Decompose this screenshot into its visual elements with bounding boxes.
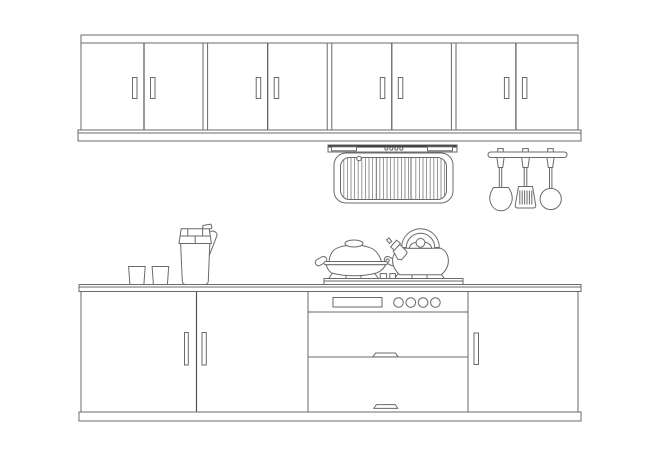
countertop bbox=[79, 285, 581, 292]
base-cabinet-run bbox=[79, 292, 581, 422]
upper-door-handle bbox=[380, 78, 385, 99]
oven-knob bbox=[431, 298, 441, 308]
hood-indicator-light bbox=[357, 156, 362, 161]
hood-control-dot bbox=[385, 147, 388, 150]
spatula-hanger bbox=[497, 158, 504, 168]
base-door-handle bbox=[185, 333, 189, 366]
slotted-turner bbox=[515, 158, 536, 209]
covered-wok bbox=[314, 240, 397, 276]
wok-spatula bbox=[490, 158, 512, 211]
tea-kettle bbox=[386, 229, 448, 275]
turner-handle bbox=[524, 168, 527, 187]
wok-lid-knob bbox=[345, 240, 363, 247]
water-pitcher bbox=[179, 224, 218, 284]
upper-door-handle bbox=[151, 78, 156, 99]
hood-control-dot bbox=[395, 147, 398, 150]
cups bbox=[129, 267, 169, 285]
kettle-spout-lever bbox=[387, 238, 392, 243]
upper-door-handle bbox=[522, 78, 527, 99]
igniter-block bbox=[380, 274, 386, 279]
base-door-handle bbox=[474, 333, 479, 365]
upper-cabinet-bottom-rail bbox=[78, 130, 581, 141]
rack-bar bbox=[488, 152, 567, 158]
countertop-strip bbox=[79, 285, 581, 292]
turner-hanger bbox=[522, 158, 530, 168]
upper-cabinet-stile bbox=[203, 43, 208, 130]
oven-door-handle-tab bbox=[373, 353, 398, 357]
spatula-handle bbox=[499, 168, 501, 188]
hood-control-dot bbox=[400, 147, 403, 150]
turner-head bbox=[515, 187, 536, 209]
oven-drawer-handle-tab bbox=[374, 405, 398, 409]
oven-knob bbox=[406, 298, 416, 308]
cup bbox=[152, 267, 169, 285]
toe-kick bbox=[79, 412, 581, 421]
upper-cabinet-run bbox=[78, 35, 581, 141]
upper-cabinet-top-rail bbox=[81, 35, 578, 43]
kitchen-elevation-drawing bbox=[0, 0, 650, 459]
utensil-rack bbox=[488, 149, 567, 211]
hood-grille bbox=[341, 158, 447, 200]
cup bbox=[129, 267, 146, 285]
upper-cabinet-stile bbox=[451, 43, 456, 130]
hood-side-vent bbox=[332, 147, 357, 151]
oven-knob bbox=[394, 298, 404, 308]
upper-door-handle bbox=[133, 78, 138, 99]
oven-knob bbox=[418, 298, 428, 308]
upper-door-handle bbox=[398, 78, 403, 99]
oven-display bbox=[333, 298, 382, 308]
hood-side-vent bbox=[428, 147, 453, 151]
wok-body bbox=[326, 265, 386, 276]
upper-door-handle bbox=[504, 78, 509, 99]
ladle bbox=[540, 158, 561, 210]
base-cabinet-body bbox=[81, 292, 578, 413]
kitchen-line-art bbox=[0, 0, 650, 459]
ladle-hanger bbox=[547, 158, 554, 168]
pitcher-body bbox=[181, 244, 210, 285]
base-door-handle bbox=[202, 333, 206, 366]
upper-cabinet-stile bbox=[327, 43, 332, 130]
ladle-handle bbox=[550, 168, 552, 190]
spatula-head bbox=[490, 188, 512, 211]
kettle-hinge-dot bbox=[386, 259, 389, 262]
upper-door-handle bbox=[256, 78, 261, 99]
ladle-bowl bbox=[540, 188, 561, 209]
kettle-lid-knob bbox=[416, 238, 425, 247]
hood-control-dot bbox=[390, 147, 393, 150]
igniter-block bbox=[390, 274, 396, 279]
upper-door-handle bbox=[274, 78, 279, 99]
wok-lid bbox=[329, 245, 382, 262]
range-hood bbox=[328, 145, 457, 203]
